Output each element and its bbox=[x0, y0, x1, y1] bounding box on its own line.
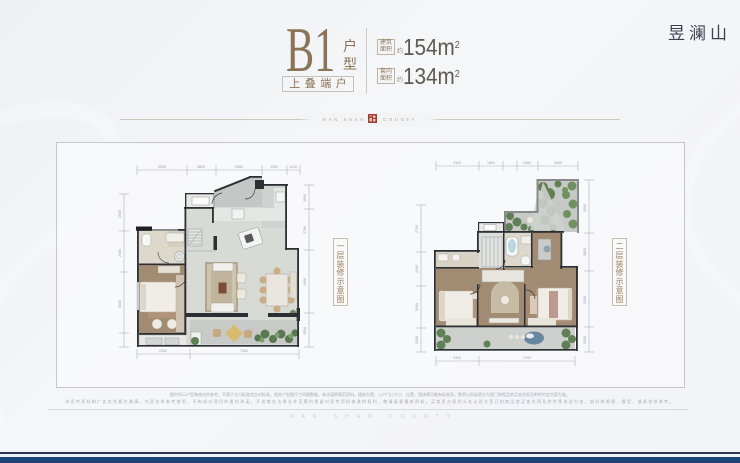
svg-text:2100: 2100 bbox=[415, 265, 419, 273]
svg-text:2800: 2800 bbox=[197, 165, 205, 169]
svg-text:4000: 4000 bbox=[303, 278, 307, 286]
svg-text:7200: 7200 bbox=[523, 356, 531, 360]
svg-text:1500: 1500 bbox=[415, 336, 419, 344]
svg-text:3000: 3000 bbox=[554, 161, 562, 165]
svg-text:3300: 3300 bbox=[415, 303, 419, 311]
svg-text:3300: 3300 bbox=[583, 204, 587, 212]
svg-text:1500: 1500 bbox=[303, 327, 307, 335]
svg-text:2000: 2000 bbox=[158, 165, 166, 169]
svg-text:1800: 1800 bbox=[583, 248, 587, 256]
svg-text:1500: 1500 bbox=[583, 336, 587, 344]
svg-text:3600: 3600 bbox=[118, 300, 122, 308]
svg-text:2300: 2300 bbox=[159, 349, 167, 353]
svg-text:1500: 1500 bbox=[118, 210, 122, 218]
svg-text:2400: 2400 bbox=[523, 161, 531, 165]
svg-text:3300: 3300 bbox=[583, 296, 587, 304]
svg-text:3300: 3300 bbox=[453, 161, 461, 165]
svg-text:7500: 7500 bbox=[240, 349, 248, 353]
svg-text:2500: 2500 bbox=[118, 249, 122, 257]
svg-text:2850: 2850 bbox=[235, 165, 243, 169]
svg-text:1000: 1000 bbox=[303, 194, 307, 202]
svg-text:2700: 2700 bbox=[303, 226, 307, 234]
svg-text:1100: 1100 bbox=[289, 165, 297, 169]
svg-text:1050: 1050 bbox=[270, 165, 278, 169]
svg-text:1800: 1800 bbox=[487, 161, 495, 165]
svg-text:3300: 3300 bbox=[453, 356, 461, 360]
svg-text:2700: 2700 bbox=[415, 225, 419, 233]
